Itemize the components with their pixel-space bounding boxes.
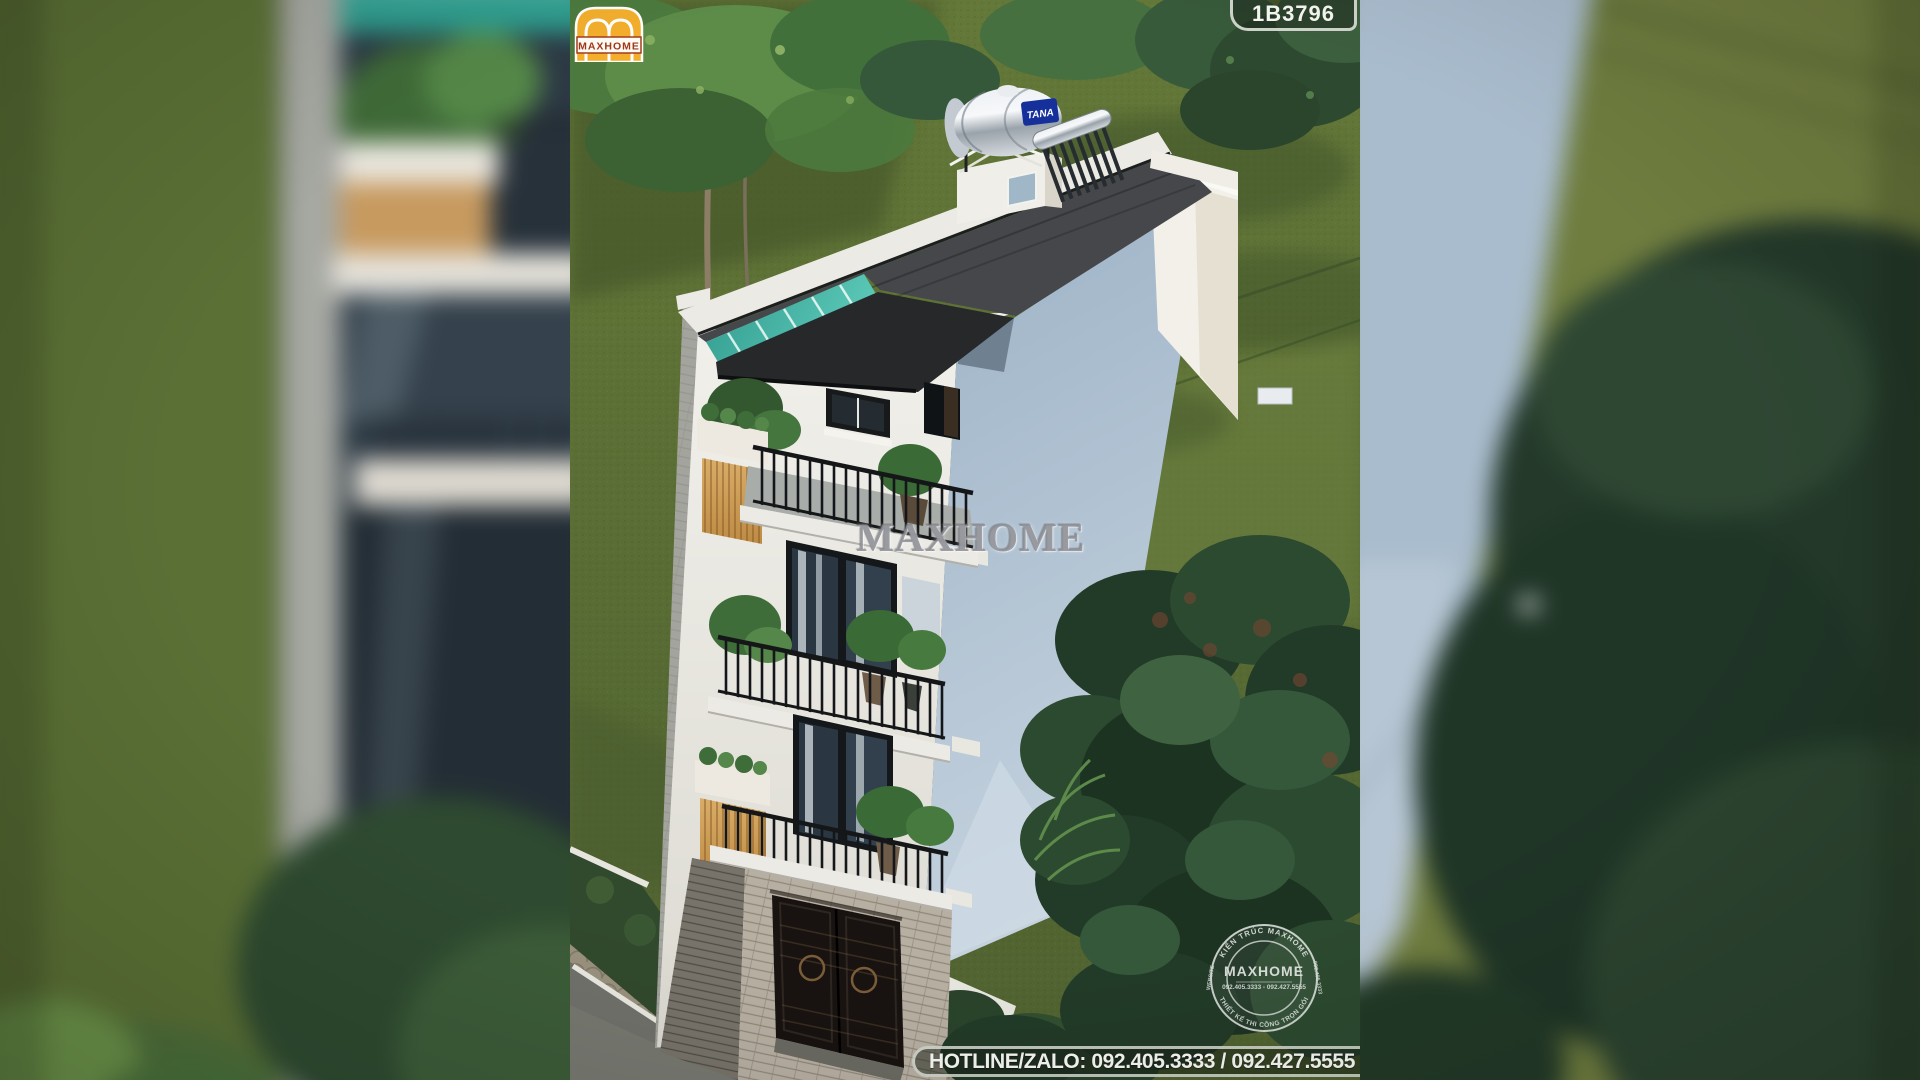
blur-slab-2 — [354, 459, 572, 506]
blur-planter — [341, 142, 499, 185]
curtain-2a — [805, 724, 813, 834]
curtain-3b — [816, 554, 822, 657]
project-code: 1B3796 — [1252, 1, 1335, 27]
hedge-leaf-1 — [586, 876, 614, 904]
curtain-3a — [798, 550, 806, 654]
maxhome-m-arch-icon: MAXHOME — [572, 4, 646, 62]
logo-wordmark: MAXHOME — [578, 41, 640, 53]
stamp-phones: 092.405.3333 - 092.427.5555 — [1222, 984, 1306, 991]
stamp-brand: MAXHOME — [1224, 963, 1304, 979]
ac-unit — [1258, 388, 1292, 404]
brand-logo: MAXHOME — [572, 4, 646, 62]
hedge-leaf-2 — [624, 914, 656, 946]
blur-bonsai-2 — [424, 32, 542, 128]
blur-edge-shade-right — [1876, 0, 1920, 1080]
brand-stamp: KIẾN TRÚC MAXHOME THIẾT KẾ THI CÔNG TRỌN… — [1202, 916, 1326, 1040]
hotline-bar: HOTLINE/ZALO: 092.405.3333 / 092.427.555… — [912, 1046, 1360, 1077]
render-viewport: TANA — [570, 0, 1360, 1080]
blur-slab — [333, 253, 572, 294]
blurred-backdrop-left — [0, 0, 572, 1080]
blur-trees-4 — [1533, 262, 1875, 519]
project-code-badge: 1B3796 — [1230, 0, 1357, 31]
blur-skylight — [341, 0, 572, 33]
blur-white-speck — [1520, 598, 1537, 612]
screenshot-stage: TANA — [0, 0, 1920, 1080]
blur-wood-panel — [341, 183, 491, 258]
blur-edge-shade — [0, 0, 44, 1080]
center-watermark: MAXHOME — [876, 514, 1066, 560]
blurred-backdrop-right — [1357, 0, 1920, 1080]
hotline-text: HOTLINE/ZALO: 092.405.3333 / 092.427.555… — [929, 1050, 1355, 1074]
